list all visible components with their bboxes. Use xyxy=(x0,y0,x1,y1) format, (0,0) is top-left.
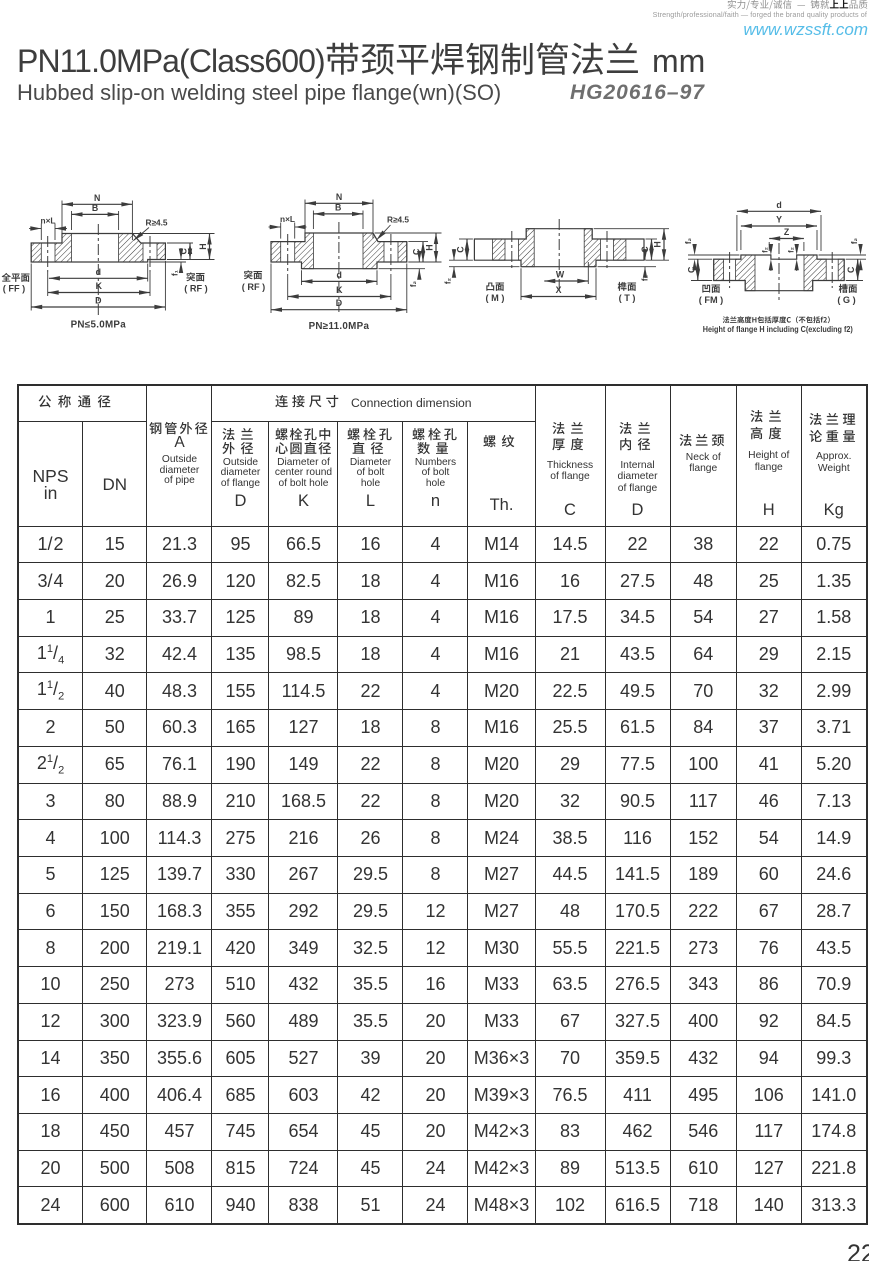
svg-text:PN≥11.0MPa: PN≥11.0MPa xyxy=(309,321,370,332)
svg-text:H: H xyxy=(425,244,435,250)
svg-text:d: d xyxy=(337,270,342,280)
svg-text:f₂: f₂ xyxy=(684,237,693,244)
svg-text:W: W xyxy=(556,270,565,280)
svg-text:R≥4.5: R≥4.5 xyxy=(387,215,409,225)
svg-text:H: H xyxy=(652,241,662,247)
svg-text:C: C xyxy=(686,266,696,273)
svg-text:Z: Z xyxy=(784,227,790,237)
svg-text:n×L: n×L xyxy=(280,214,295,224)
svg-text:N: N xyxy=(336,192,342,202)
svg-text:K: K xyxy=(336,285,343,295)
svg-text:( RF ): ( RF ) xyxy=(242,282,265,292)
svg-text:( FF ): ( FF ) xyxy=(3,284,25,294)
svg-text:C: C xyxy=(456,246,466,253)
svg-text:f₂: f₂ xyxy=(761,247,770,253)
svg-text:H: H xyxy=(198,243,208,249)
svg-text:f₂: f₂ xyxy=(444,277,453,284)
svg-text:f₂: f₂ xyxy=(787,247,796,253)
svg-text:D: D xyxy=(336,298,342,308)
svg-text:C: C xyxy=(846,266,856,273)
svg-text:( T ): ( T ) xyxy=(619,293,636,303)
svg-text:( G ): ( G ) xyxy=(837,295,855,305)
svg-text:n×L: n×L xyxy=(41,216,56,226)
svg-text:Y: Y xyxy=(776,215,782,225)
svg-text:( RF ): ( RF ) xyxy=(184,284,207,294)
svg-text:d: d xyxy=(776,200,781,210)
svg-text:( FM ): ( FM ) xyxy=(699,295,724,305)
svg-text:B: B xyxy=(92,203,98,213)
svg-text:K: K xyxy=(96,281,103,291)
svg-text:B: B xyxy=(335,202,341,212)
svg-text:d: d xyxy=(96,267,101,277)
svg-text:f₂: f₂ xyxy=(641,274,650,281)
svg-text:f₂: f₂ xyxy=(850,237,859,244)
svg-text:R≥4.5: R≥4.5 xyxy=(145,218,167,228)
svg-text:PN≤5.0MPa: PN≤5.0MPa xyxy=(71,320,127,331)
svg-text:N: N xyxy=(94,193,100,203)
svg-text:f₁: f₁ xyxy=(171,269,180,276)
svg-text:f₂: f₂ xyxy=(409,280,418,287)
svg-text:Height of flange H including C: Height of flange H including C(excluding… xyxy=(703,325,853,334)
svg-text:X: X xyxy=(556,285,562,295)
svg-text:( M ): ( M ) xyxy=(486,293,505,303)
svg-text:D: D xyxy=(95,296,101,306)
